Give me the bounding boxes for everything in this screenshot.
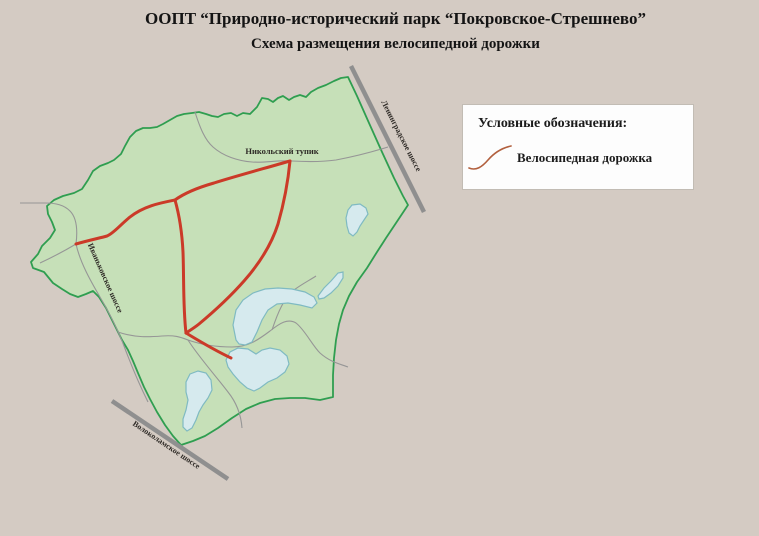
park-map: Никольский тупик Ленинградское шоссе Ива… xyxy=(0,0,759,536)
legend-item-label: Велосипедная дорожка xyxy=(517,150,652,166)
bike-path-squiggle-icon xyxy=(466,144,514,172)
road-label-nikolsky-tupik: Никольский тупик xyxy=(245,146,318,156)
park-area xyxy=(31,77,408,445)
legend-item: Велосипедная дорожка xyxy=(463,144,693,172)
legend-heading: Условные обозначения: xyxy=(478,116,693,132)
legend-box: Условные обозначения: Велосипедная дорож… xyxy=(462,104,694,190)
